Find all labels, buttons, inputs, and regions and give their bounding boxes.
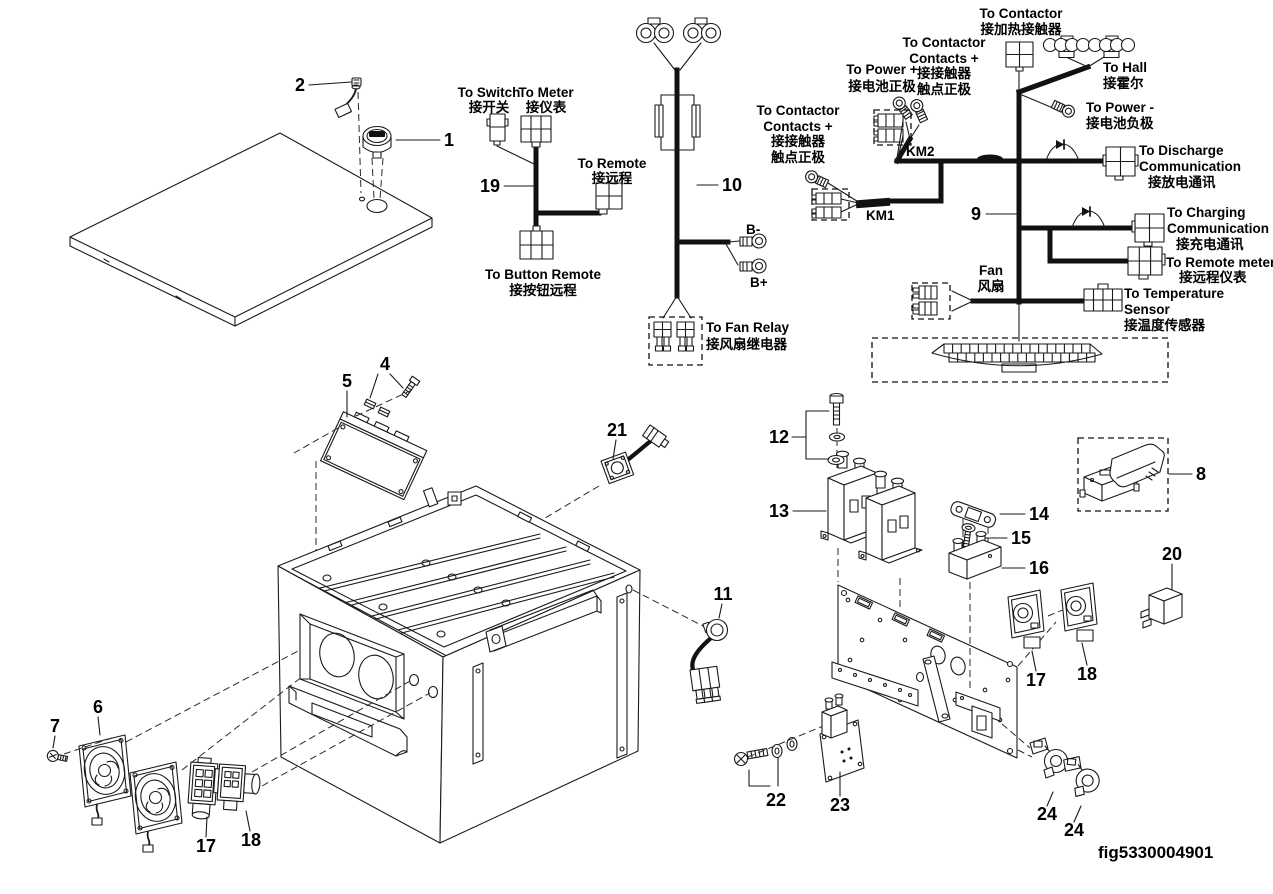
- charging-comm-connector: [1132, 214, 1164, 246]
- label-km2-contacts-1: Contacts +: [909, 51, 979, 66]
- callout-18-left: 18: [241, 830, 261, 850]
- bms-pin-strip: [932, 344, 1102, 372]
- module-8: 8: [1078, 438, 1206, 511]
- hall-connector-strips: [1044, 36, 1135, 58]
- button-remote-connector: [520, 226, 553, 259]
- controller-box: [321, 407, 429, 499]
- fan-plugs: [913, 286, 937, 315]
- contactor-23: 23: [820, 694, 864, 815]
- callout-17-right-leader: [1032, 651, 1036, 671]
- label-to-power-minus-zh: 接电池负极: [1086, 115, 1154, 131]
- label-to-contactor-heat-en: To Contactor: [980, 6, 1064, 21]
- ring-terminal-pair-b: [684, 18, 721, 43]
- label-km1-contacts-2: 接接触器: [771, 133, 825, 149]
- callout-22-leader: [749, 758, 778, 786]
- callout-17-right: 17: [1026, 670, 1046, 690]
- callout-11: 11: [713, 584, 732, 604]
- label-km1-contacts-0: To Contactor: [757, 103, 841, 118]
- label-to-fan-relay-zh: 接风扇继电器: [706, 336, 787, 352]
- label-to-switch-en: To Switch: [458, 85, 521, 100]
- callout-18-left-leader: [246, 811, 250, 831]
- callout-24-b: 24: [1064, 820, 1084, 840]
- km1-splice: [860, 202, 886, 204]
- label-discharge-1: Communication: [1139, 159, 1241, 174]
- heater-contactor-connector: [1006, 42, 1033, 71]
- callout-23: 23: [830, 795, 850, 815]
- callout-9: 9: [971, 204, 981, 224]
- callout-16: 16: [1029, 558, 1049, 578]
- meter-connector: [521, 116, 551, 147]
- discharge-comm-connector: [1103, 147, 1138, 180]
- box-corner-strip: [617, 593, 627, 758]
- callout-11-leader: [719, 604, 722, 618]
- km2-ring-terminal-b: [909, 98, 930, 124]
- label-temp-1: Sensor: [1124, 302, 1171, 317]
- label-to-hall-zh: 接霍尔: [1103, 75, 1144, 91]
- remote-connector: [596, 183, 622, 214]
- label-to-switch-zh: 接开关: [469, 99, 510, 115]
- callout-22: 22: [766, 790, 786, 810]
- callout-2: 2: [295, 75, 305, 95]
- connector-18-right: 18: [1061, 583, 1097, 684]
- callout-4-leader: [370, 374, 403, 398]
- temp-sensor-connector: [1084, 284, 1122, 311]
- callout-17-left: 17: [196, 836, 216, 856]
- switch-connector: [487, 114, 508, 145]
- sensor-11-connector: [690, 666, 721, 703]
- label-km2: KM2: [906, 144, 935, 159]
- label-to-remote-en: To Remote: [578, 156, 647, 171]
- screw-7: 7: [46, 716, 68, 764]
- callout-1: 1: [444, 130, 454, 150]
- km2-plugs: [874, 114, 903, 158]
- label-to-meter-en: To Meter: [518, 85, 574, 100]
- label-km2-contacts-3: 触点正极: [917, 81, 971, 97]
- power-minus-terminal: [1050, 99, 1076, 120]
- gauge-part-1: [363, 127, 391, 159]
- callout-4: 4: [380, 354, 390, 374]
- contactors-13: 13: [769, 451, 922, 563]
- figure-id: fig5330004901: [1098, 843, 1213, 862]
- box-apex-tab: [448, 492, 461, 505]
- callout-5: 5: [342, 371, 352, 391]
- lid-assembly: 2 1: [70, 75, 454, 326]
- callout-17-left-leader: [206, 817, 207, 837]
- label-to-power-minus-en: To Power -: [1086, 100, 1154, 115]
- lid-panel: [70, 133, 432, 317]
- parts-diagram-page: 2 1 To Switch 接开关 To Meter 接仪表 To Remote…: [0, 0, 1273, 894]
- label-charging-1: Communication: [1167, 221, 1269, 236]
- callout-7-leader: [53, 736, 55, 748]
- fan-assembly-6: 6: [64, 650, 303, 852]
- label-to-fan-relay-en: To Fan Relay: [706, 320, 790, 335]
- hardware-12: 12: [769, 394, 845, 465]
- callout-6: 6: [93, 697, 103, 717]
- callout-10: 10: [722, 175, 742, 195]
- label-remote-meters-zh: 接远程仪表: [1179, 269, 1247, 285]
- callout-21: 21: [607, 420, 627, 440]
- label-to-hall-en: To Hall: [1103, 60, 1147, 75]
- fan-relay-connectors: [654, 322, 694, 351]
- label-fan-zh: 风扇: [978, 278, 1005, 294]
- label-temp-0: To Temperature: [1124, 286, 1225, 301]
- box-mid-strip: [473, 663, 483, 764]
- label-fan-en: Fan: [979, 263, 1003, 278]
- callout-18-right: 18: [1077, 664, 1097, 684]
- callout-6-leader: [98, 717, 100, 735]
- callout-2-leader: [309, 82, 351, 85]
- exploded-parts-diagram: 2 1 To Switch 接开关 To Meter 接仪表 To Remote…: [0, 0, 1273, 894]
- label-km2-contacts-2: 接接触器: [917, 65, 971, 81]
- diode-jumper-charging: [1072, 207, 1105, 228]
- callout-19: 19: [480, 176, 500, 196]
- diode-jumper-discharge: [1046, 140, 1079, 161]
- label-remote-meters-en: To Remote meters: [1166, 255, 1273, 270]
- label-km1-contacts-3: 触点正极: [771, 149, 825, 165]
- label-to-power-plus-en: To Power +: [846, 62, 918, 77]
- hardware-22: 22: [735, 724, 829, 810]
- clamp-24-b: [1060, 755, 1101, 799]
- battery-box: [278, 486, 640, 843]
- sensor-11: 11: [633, 584, 733, 704]
- label-to-button-remote-en: To Button Remote: [485, 267, 601, 282]
- clamps-24: 24 24: [1030, 738, 1102, 840]
- callout-20: 20: [1162, 544, 1182, 564]
- remote-meters-connector: [1128, 247, 1165, 279]
- label-to-power-plus-zh: 接电池正极: [848, 78, 916, 94]
- connector-17-left: 17: [187, 757, 218, 856]
- label-to-meter-zh: 接仪表: [526, 99, 567, 115]
- fan-1: [79, 735, 131, 825]
- harness-10: B- B+ To Fan Relay 接风扇继电器 10: [637, 18, 790, 365]
- label-km1: KM1: [866, 208, 895, 223]
- clamp-24-a: [1030, 738, 1068, 778]
- relay-20: 20: [1141, 544, 1182, 628]
- label-discharge-0: To Discharge: [1139, 143, 1224, 158]
- km1-ring-terminal: [804, 169, 830, 190]
- label-discharge-2: 接放电通讯: [1148, 174, 1216, 190]
- callout-15: 15: [1011, 528, 1031, 548]
- callout-12-leader: [792, 411, 829, 459]
- harness-9: To Contactor 接加热接触器 To Contactor Contact…: [757, 6, 1273, 382]
- sensor-part-2: [335, 78, 361, 117]
- callout-7: 7: [50, 716, 60, 736]
- label-b-minus: B-: [746, 222, 760, 237]
- callout-12: 12: [769, 427, 789, 447]
- callout-18-right-leader: [1082, 643, 1087, 665]
- callout-13: 13: [769, 501, 789, 521]
- wire-splice-lens: [977, 155, 1003, 164]
- label-charging-2: 接充电通讯: [1176, 236, 1244, 252]
- label-km1-contacts-1: Contacts +: [763, 119, 833, 134]
- harness-19: To Switch 接开关 To Meter 接仪表 To Remote 接远程…: [458, 85, 647, 298]
- label-to-contactor-heat-zh: 接加热接触器: [981, 21, 1062, 37]
- callout-8: 8: [1196, 464, 1206, 484]
- label-b-plus: B+: [750, 275, 768, 290]
- module-8-cover: [1110, 444, 1164, 487]
- label-to-button-remote-zh: 接按钮远程: [509, 282, 577, 298]
- label-temp-2: 接温度传感器: [1124, 317, 1205, 333]
- label-km2-contacts-0: To Contactor: [903, 35, 987, 50]
- screws-4: [364, 376, 420, 417]
- ring-terminal-pair-a: [637, 18, 674, 43]
- km1-plugs: [812, 193, 858, 218]
- fan-2: [130, 762, 182, 852]
- callout-14: 14: [1029, 504, 1049, 524]
- callout-24-a: 24: [1037, 804, 1057, 824]
- label-to-remote-zh: 接远程: [592, 170, 633, 186]
- label-charging-0: To Charging: [1167, 205, 1246, 220]
